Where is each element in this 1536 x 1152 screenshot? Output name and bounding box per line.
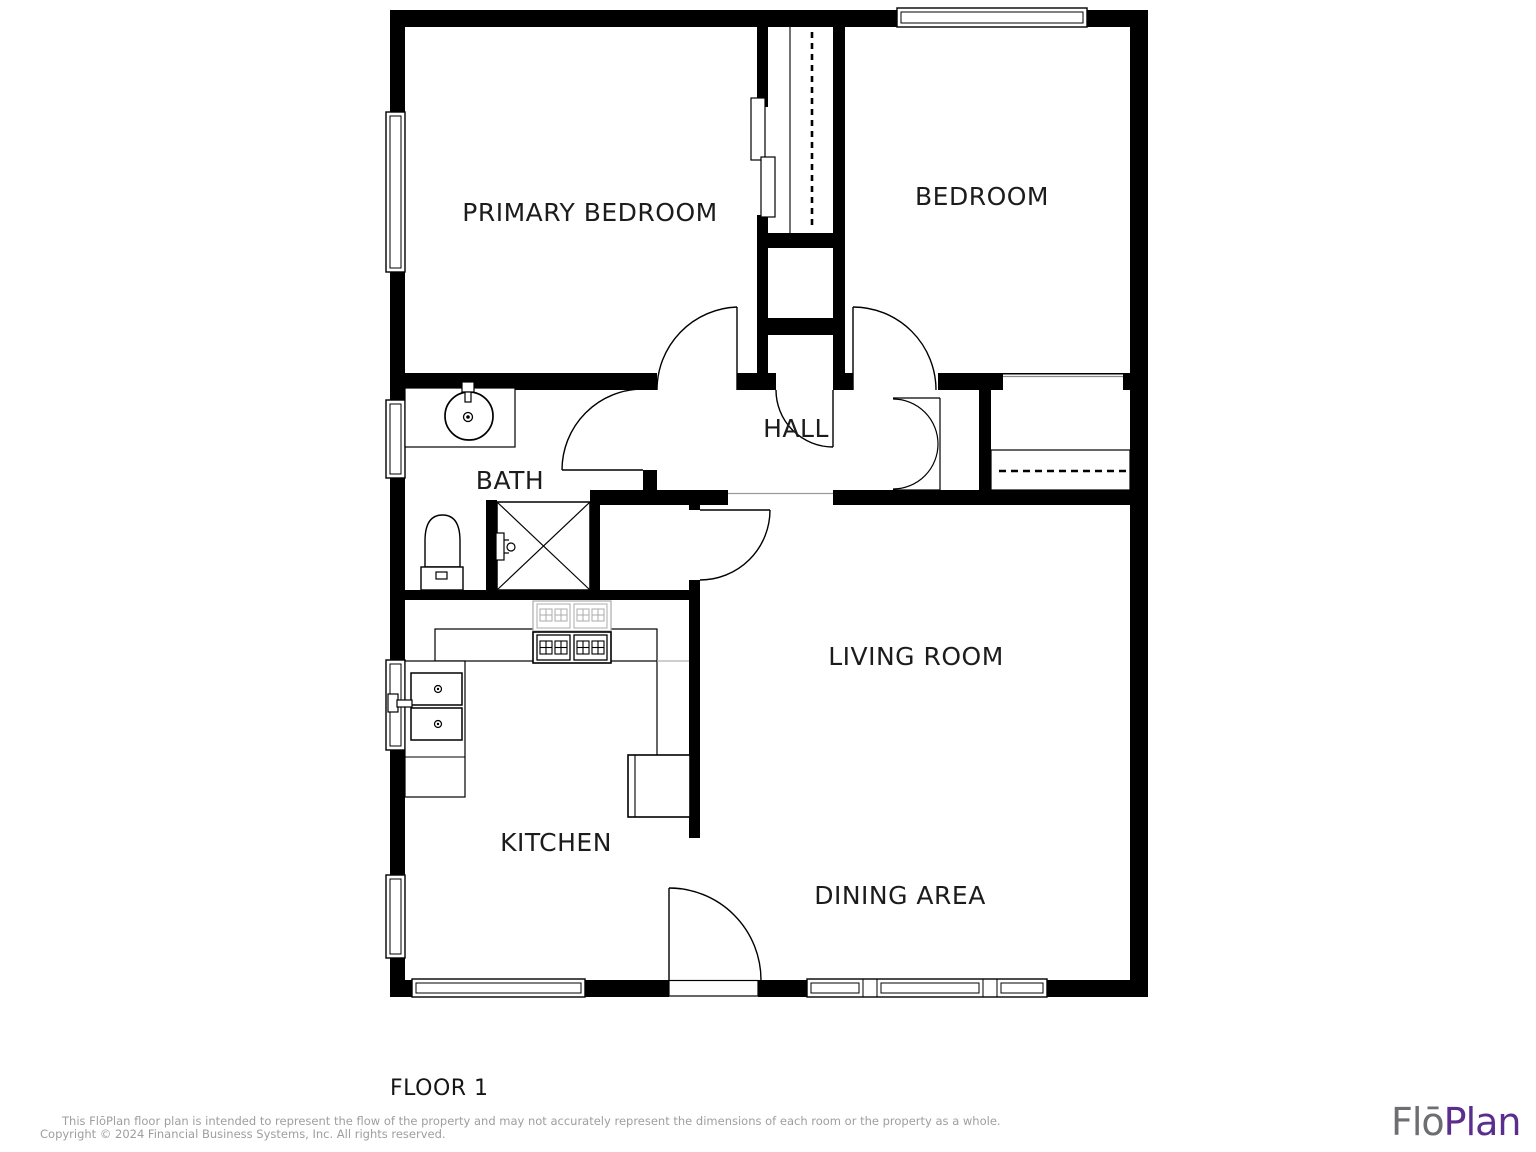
wall-closet-strip-left-stub <box>757 27 768 107</box>
label-kitchen: KITCHEN <box>500 828 612 857</box>
opening-living-closet-door <box>687 510 702 580</box>
window-dining-bottom <box>807 979 1047 997</box>
label-living-room: LIVING ROOM <box>828 642 1004 671</box>
opening-primary-bedroom-door <box>657 372 737 391</box>
floor-plan-drawing: PRIMARY BEDROOM BEDROOM HALL BATH KITCHE… <box>0 0 1536 1152</box>
bath-vanity-sink <box>405 382 515 447</box>
range-ghost <box>533 601 611 631</box>
disclaimer-line1: This FlōPlan floor plan is intended to r… <box>62 1114 1001 1128</box>
floplan-logo: FlōPlan <box>1391 1100 1521 1144</box>
wall-entry-closet-west <box>979 373 991 505</box>
label-hall: HALL <box>763 414 829 443</box>
wall-shower-right <box>590 500 600 590</box>
wall-hall-south <box>590 490 1148 505</box>
label-bath: BATH <box>476 466 544 495</box>
opening-hall-living <box>728 488 833 507</box>
label-dining-area: DINING AREA <box>814 881 986 910</box>
door-living-closet <box>700 510 770 580</box>
refrigerator <box>628 755 690 817</box>
window-bedroom-top <box>897 8 1087 27</box>
door-bifold-hall-closet <box>893 398 940 490</box>
opening-hall-closet-door <box>776 372 833 391</box>
floor-plan-page: PRIMARY BEDROOM BEDROOM HALL BATH KITCHE… <box>0 0 1536 1152</box>
shower-valve <box>496 533 504 560</box>
window-bath-left <box>386 400 405 478</box>
floplan-logo-plan: Plan <box>1444 1100 1521 1144</box>
window-kitchen-bottom <box>412 979 585 997</box>
doors <box>562 98 940 996</box>
window-primary-bedroom-left <box>386 112 405 272</box>
kitchen-fixtures <box>388 601 690 817</box>
disclaimer-line2: Copyright © 2024 Financial Business Syst… <box>40 1127 446 1141</box>
door-bath <box>562 389 643 470</box>
range-stove <box>533 632 611 663</box>
floor-number-label: FLOOR 1 <box>390 1076 489 1101</box>
label-bedroom: BEDROOM <box>915 182 1049 211</box>
toilet <box>421 515 463 590</box>
wall-closet-strip-bar2 <box>757 318 845 335</box>
wall-closet-strip-bar1 <box>757 233 845 248</box>
wall-kitchen-north <box>405 590 700 600</box>
window-kitchen-left-lower <box>386 875 405 958</box>
label-primary-bedroom: PRIMARY BEDROOM <box>462 198 717 227</box>
floplan-logo-flo: Flō <box>1391 1100 1444 1144</box>
door-sliding-primary-closet <box>751 98 775 217</box>
opening-bedroom-door <box>853 372 938 391</box>
opening-bath-door <box>641 390 659 470</box>
shower <box>496 502 590 590</box>
wall-shower-left <box>486 500 497 590</box>
